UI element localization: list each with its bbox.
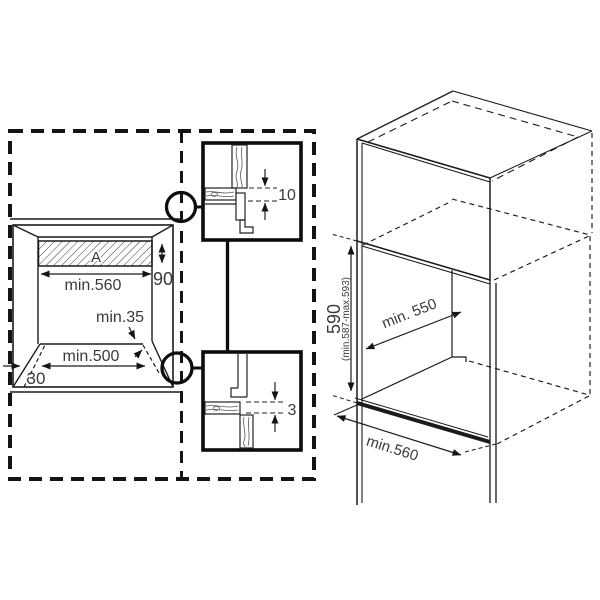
label-dim-min500: min.500: [63, 348, 120, 365]
label-dim-10: 10: [278, 187, 296, 204]
label-panel-a: A: [91, 249, 101, 266]
label-dim-min35: min.35: [96, 309, 144, 326]
oven-niche: [355, 241, 496, 503]
label-dim-min560-iso: min.560: [364, 433, 420, 465]
detail-view-top: 10: [203, 143, 301, 240]
label-dim-90: 90: [153, 269, 173, 289]
detail-view-bottom: 3: [203, 352, 301, 450]
hidden-edges: [363, 133, 592, 444]
label-dim-30: 30: [27, 369, 46, 388]
diagram-canvas: A 90 min.560 min.35 min.500 30 10: [0, 0, 600, 600]
label-dim-3: 3: [288, 402, 297, 419]
dim-arrow-min35-down: [129, 327, 135, 339]
upper-cabinet: [357, 91, 592, 281]
label-dim-min550: min. 550: [379, 295, 439, 332]
top-face-hidden-inset: [368, 101, 578, 181]
callout-circle-bottom: [162, 353, 192, 383]
label-dim-590-range: (min.587-max.593): [341, 277, 352, 361]
dim-arrow-min35-up: [135, 350, 142, 357]
oven-flange: [236, 193, 245, 220]
installation-diagram: A 90 min.560 min.35 min.500 30 10: [0, 0, 600, 600]
niche-back-step: [452, 357, 466, 362]
label-dim-min560-front: min.560: [65, 277, 122, 294]
detail-bottom-frame: [203, 352, 301, 450]
niche-floor-left-edge: [362, 357, 452, 399]
